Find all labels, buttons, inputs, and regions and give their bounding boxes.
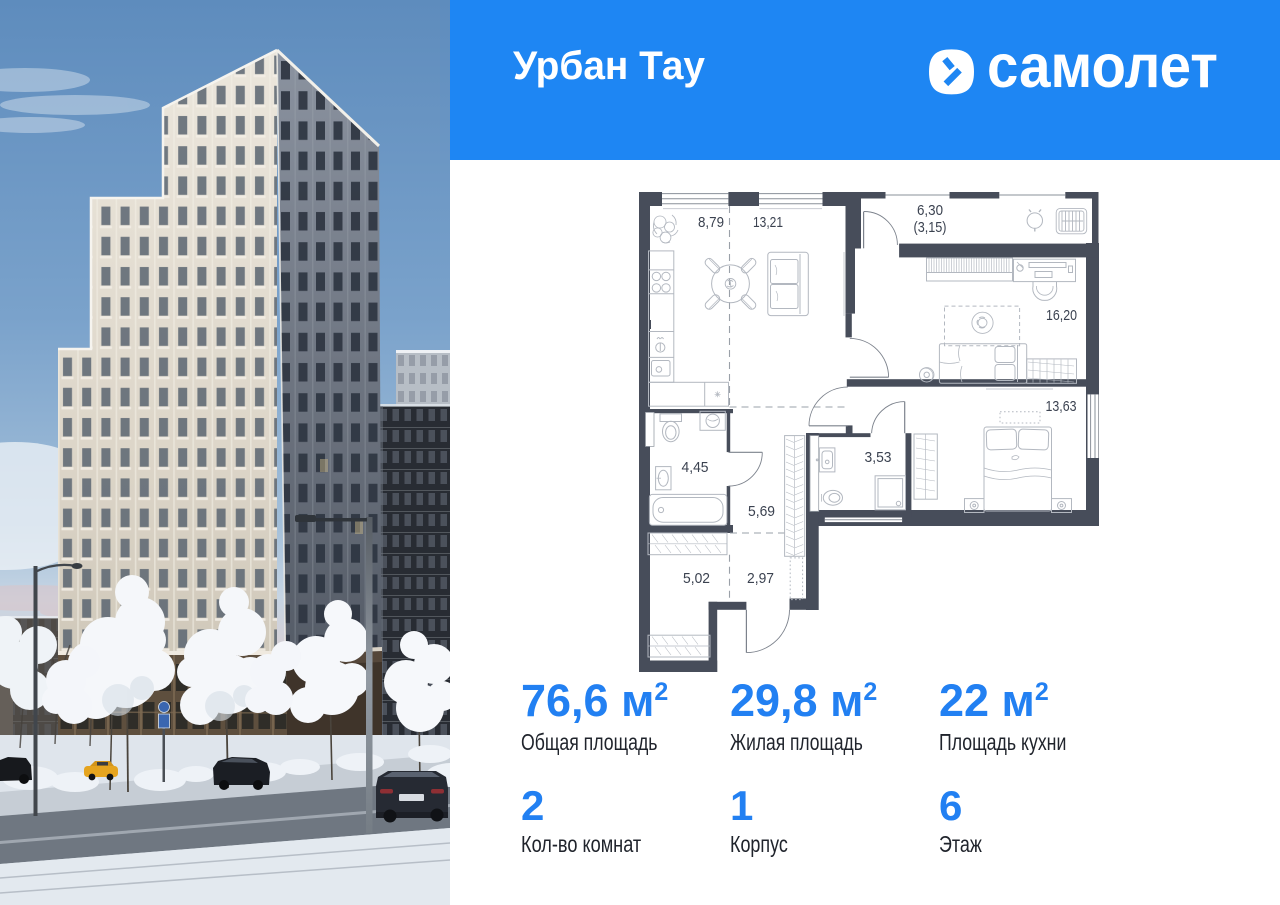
svg-text:(3,15): (3,15) [914, 219, 947, 236]
svg-text:2,97: 2,97 [747, 570, 774, 587]
svg-text:13,21: 13,21 [753, 214, 783, 231]
svg-text:5,02: 5,02 [683, 570, 710, 587]
svg-text:8,79: 8,79 [698, 214, 724, 231]
svg-text:16,20: 16,20 [1046, 307, 1077, 324]
svg-text:4,45: 4,45 [682, 459, 709, 476]
svg-text:6,30: 6,30 [917, 202, 943, 219]
svg-text:5,69: 5,69 [748, 503, 775, 520]
svg-text:3,53: 3,53 [865, 449, 892, 466]
svg-text:13,63: 13,63 [1046, 398, 1077, 415]
